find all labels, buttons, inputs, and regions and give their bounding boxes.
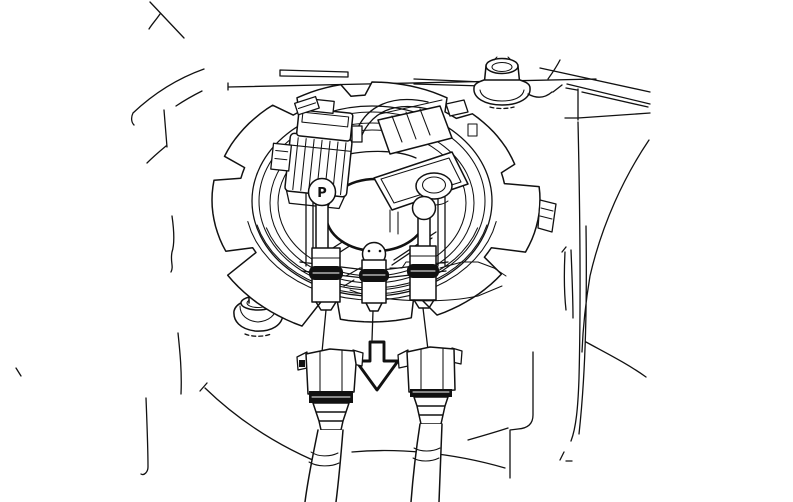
fuel-port-tube-right [407, 246, 439, 308]
fitting-right-rings [414, 397, 448, 424]
port-tab-p-stem-fill [316, 203, 328, 250]
fitting-left-collar [306, 349, 356, 394]
grommet-left-hidden-edge [245, 334, 271, 336]
fuel-pump-module: P [212, 82, 556, 326]
fuel-port-tube-center [359, 260, 389, 311]
fitting-right-collar [407, 347, 455, 392]
body-sketch-top-left [132, 2, 204, 163]
sensor-box-tab [446, 100, 468, 116]
illustration-canvas: P [0, 0, 793, 502]
port-tab-center-dot-right [379, 250, 382, 253]
grommet-tr-side-marks [528, 60, 562, 97]
port-tab-right-stem-fill [418, 218, 430, 246]
port-tab-center-dot-left [368, 250, 371, 253]
grommet-tr-hidden-edge [490, 107, 514, 109]
quick-connect-fitting-right [398, 347, 462, 502]
ring-clip-right [538, 200, 556, 232]
fitting-right-dark-band [410, 389, 452, 397]
sensor-strap-anchor [352, 126, 362, 142]
right-panel-lines [510, 68, 650, 478]
floor-contour-curves [200, 383, 508, 468]
rubber-grommet-top-right [474, 57, 562, 109]
fuel-port-tube-left [309, 248, 343, 310]
body-sketch-left-strokes [16, 216, 181, 475]
connector-left-latch [271, 143, 292, 171]
quick-connect-fitting-left [297, 349, 363, 502]
fitting-left-rings [313, 403, 349, 430]
fuel-pump-module-illustration: P [0, 0, 793, 502]
port-tab-right-head [413, 197, 436, 220]
hose-right-fill [411, 424, 442, 502]
fitting-left-latch-notch [299, 360, 305, 367]
port-marking-p: P [317, 186, 327, 201]
